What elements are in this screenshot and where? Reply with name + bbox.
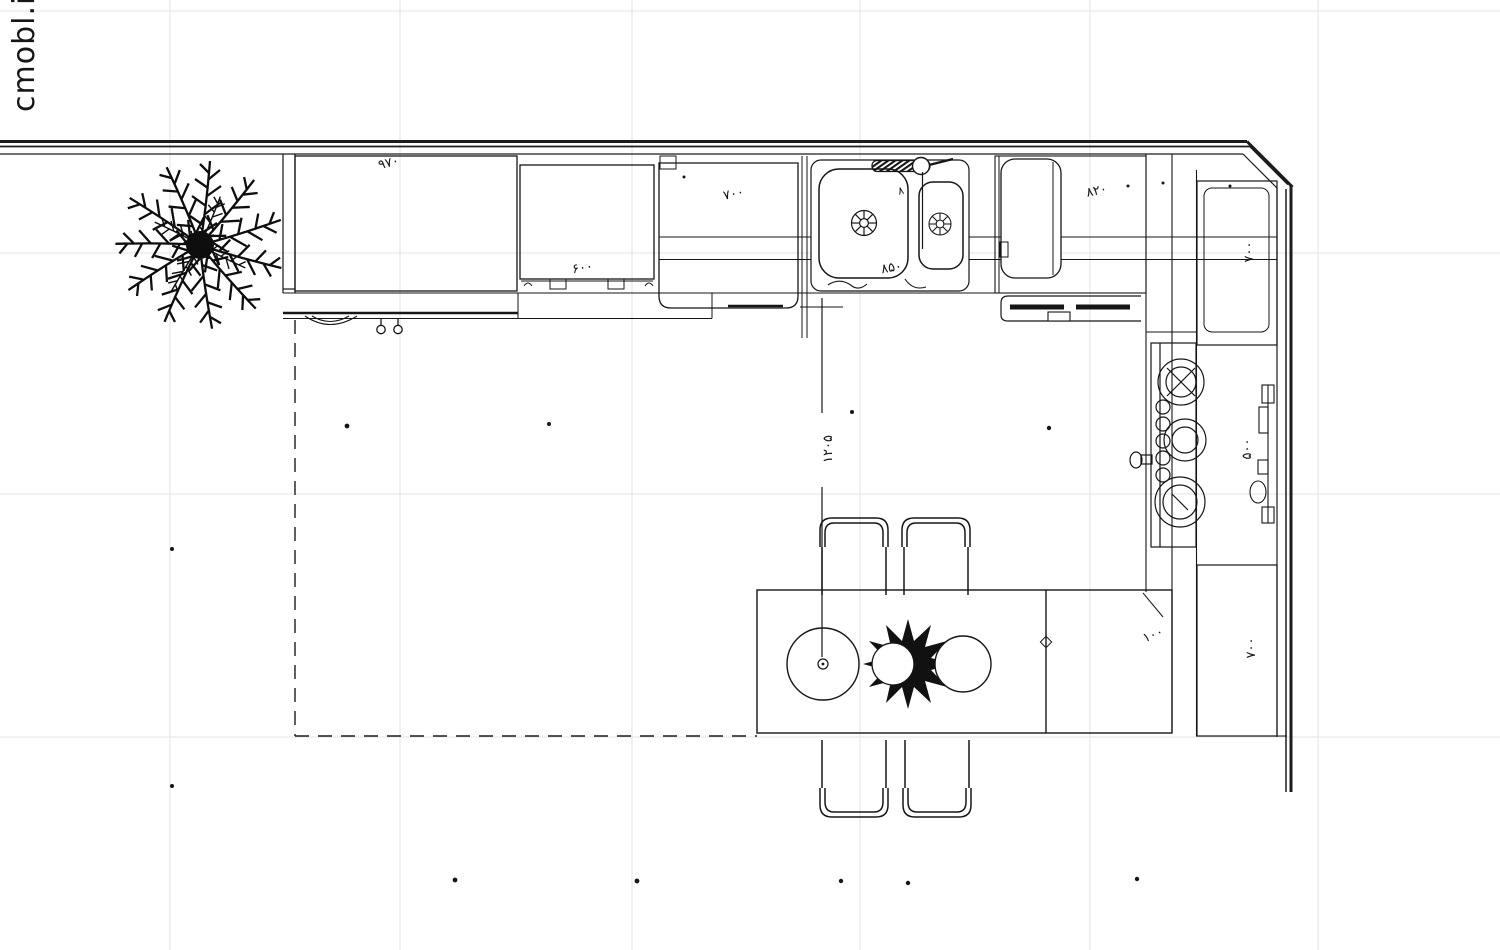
oven-front-panel (1001, 296, 1141, 321)
counter-edge-lines (283, 237, 1277, 293)
table-setting (787, 619, 991, 709)
dim-1205: ۱۲۰۵ (821, 435, 836, 463)
sink-unit (802, 156, 969, 338)
cooktop (1130, 343, 1206, 547)
floor-plan-canvas: ۹۷۰ ۶۰۰ ۷۰۰ ۸ ۸۵۰ ۸۲۰ ۱۲۰۵ ۷۰۰ ۵۰۰ ۷۰۰ ۱… (0, 0, 1500, 950)
right-counter-run (1146, 154, 1287, 736)
dim-700-right-upper: ۷۰۰ (1242, 242, 1257, 263)
dim-100: ۱۰۰ (1141, 624, 1166, 646)
dim-600: ۶۰۰ (571, 259, 594, 277)
chair (820, 518, 888, 595)
burner-icon (1158, 359, 1204, 405)
dashed-floor-boundary (295, 320, 757, 736)
cooktop-knobs (1156, 400, 1170, 482)
watermark: cmobl.ir (7, 0, 42, 112)
tall-cabinet-column (283, 154, 295, 293)
dim-500-right: ۵۰۰ (1240, 439, 1255, 460)
right-upper-cabinet (1197, 181, 1277, 345)
door-handles (377, 318, 402, 334)
right-lower-cabinet (1197, 565, 1277, 736)
plate (935, 636, 991, 692)
floor-plan-drawing: ۹۷۰ ۶۰۰ ۷۰۰ ۸ ۸۵۰ ۸۲۰ ۱۲۰۵ ۷۰۰ ۵۰۰ ۷۰۰ ۱… (0, 0, 1500, 950)
chair (902, 518, 970, 595)
floor-specks (170, 176, 1232, 886)
dim-700: ۷۰۰ (722, 185, 746, 204)
burner-icon (1155, 477, 1205, 527)
towel-hook (1130, 452, 1152, 468)
drainboard-cabinet (995, 156, 1146, 293)
centerpiece-pot (872, 643, 914, 685)
sink-bowl-right (919, 182, 963, 269)
dim-700-right-lower: ۷۰۰ (1244, 638, 1259, 659)
chair (820, 740, 888, 817)
refrigerator-cabinet (295, 156, 517, 291)
base-cabinet-doors (283, 293, 712, 334)
chair (903, 740, 971, 817)
tree-plant-icon (114, 161, 285, 332)
dim-820: ۸۲۰ (1085, 182, 1109, 201)
